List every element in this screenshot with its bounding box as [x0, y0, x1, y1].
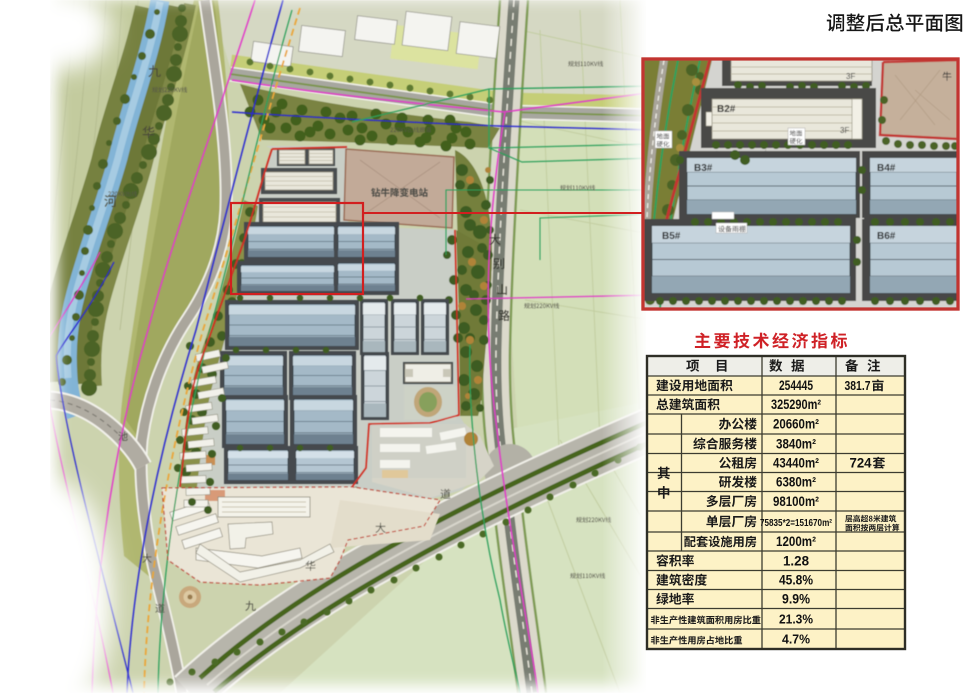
svg-text:B6#: B6# — [877, 231, 896, 242]
svg-text:1200m²: 1200m² — [776, 534, 816, 549]
svg-text:98100m²: 98100m² — [773, 494, 819, 509]
svg-text:43440m²: 43440m² — [773, 456, 819, 471]
svg-text:9.9%: 9.9% — [782, 592, 810, 607]
svg-text:4.7%: 4.7% — [782, 632, 810, 647]
svg-text:254445: 254445 — [779, 378, 813, 393]
svg-text:B4#: B4# — [877, 163, 896, 174]
svg-text:381.7: 381.7 — [845, 378, 871, 393]
svg-text:21.3%: 21.3% — [779, 611, 813, 626]
svg-text:3840m²: 3840m² — [776, 436, 816, 451]
svg-text:75835*2=151670m²: 75835*2=151670m² — [760, 517, 832, 529]
svg-text:3F: 3F — [846, 72, 855, 81]
svg-text:1.28: 1.28 — [783, 553, 809, 568]
svg-text:B5#: B5# — [662, 231, 681, 242]
svg-text:20660m²: 20660m² — [773, 417, 819, 432]
svg-text:3F: 3F — [840, 126, 849, 135]
svg-text:B2#: B2# — [717, 104, 736, 115]
svg-text:45.8%: 45.8% — [779, 573, 813, 588]
svg-text:325290m²: 325290m² — [771, 397, 821, 412]
svg-text:724: 724 — [850, 456, 872, 471]
svg-text:6380m²: 6380m² — [776, 475, 816, 490]
svg-text:B3#: B3# — [694, 163, 713, 174]
